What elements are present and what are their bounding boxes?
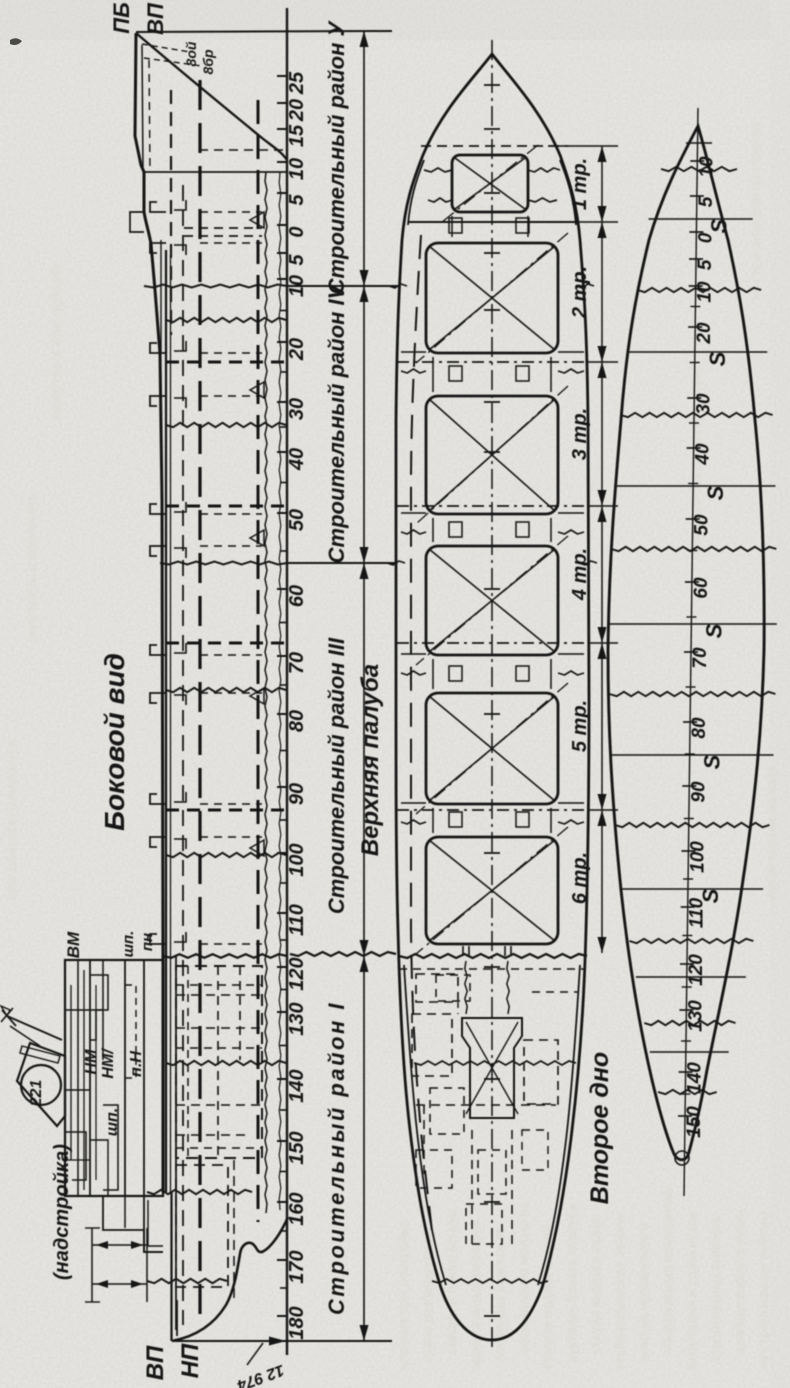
svg-text:8ой: 8ой (183, 41, 199, 66)
svg-text:Второе дно: Второе дно (586, 1052, 614, 1204)
svg-text:крупных блоков корпуса: крупных блоков корпуса (564, 1205, 580, 1362)
svg-text:значительных размеров: значительных размеров (468, 1219, 484, 1370)
svg-text:S: S (701, 623, 726, 638)
svg-text:S: S (707, 218, 732, 233)
svg-text:180: 180 (286, 1306, 308, 1339)
svg-text:6 тр.: 6 тр. (569, 852, 591, 904)
svg-text:90: 90 (688, 781, 709, 803)
svg-text:120: 120 (686, 954, 707, 986)
svg-text:80: 80 (689, 717, 710, 739)
svg-text:ВП: ВП (143, 2, 168, 35)
svg-text:5: 5 (695, 259, 716, 270)
svg-text:25: 25 (286, 71, 308, 95)
svg-text:при этом обеспечивается: при этом обеспечивается (4, 740, 20, 900)
svg-text:Строительный район I: Строительный район I (324, 1001, 349, 1315)
svg-text:150: 150 (684, 1106, 705, 1138)
svg-text:30: 30 (286, 398, 308, 420)
svg-text:40: 40 (693, 443, 714, 466)
svg-text:40: 40 (286, 448, 308, 471)
svg-text:2 тр.: 2 тр. (569, 266, 591, 319)
svg-text:170: 170 (286, 1250, 308, 1283)
svg-text:жесткость и прочность: жесткость и прочность (24, 493, 40, 641)
svg-text:Строительный район IV: Строительный район IV (324, 282, 349, 563)
svg-text:20: 20 (694, 322, 715, 345)
svg-text:НП: НП (177, 1343, 204, 1378)
svg-text:20: 20 (286, 338, 308, 361)
svg-text:позиционном методе на: позиционном методе на (516, 1202, 532, 1354)
svg-text:5: 5 (286, 254, 308, 266)
svg-text:140: 140 (286, 1069, 308, 1102)
svg-text:испытания и сдача судна: испытания и сдача судна (684, 1211, 700, 1370)
svg-text:п.Н: п.Н (128, 1051, 145, 1077)
svg-text:4 тр.: 4 тр. (569, 548, 591, 601)
svg-text:1 тр.: 1 тр. (569, 158, 591, 210)
svg-text:5 тр.: 5 тр. (569, 700, 591, 752)
svg-text:судна разбивается на: судна разбивается на (420, 1228, 436, 1362)
svg-text:60: 60 (286, 585, 308, 607)
svg-text:сборка корпуса судна: сборка корпуса судна (588, 1217, 604, 1354)
svg-text:15: 15 (286, 124, 308, 147)
svg-text:пн: пн (139, 933, 156, 951)
svg-text:оборудования помещений: оборудования помещений (660, 1188, 676, 1354)
svg-text:Боковой вид: Боковой вид (99, 653, 130, 831)
svg-text:100: 100 (687, 841, 708, 873)
svg-text:S: S (698, 888, 723, 903)
svg-text:120: 120 (286, 957, 308, 990)
svg-text:30: 30 (693, 393, 714, 415)
svg-text:130: 130 (286, 1002, 308, 1035)
svg-text:месте в доке или на стапеле: месте в доке или на стапеле (748, 122, 764, 300)
svg-text:130: 130 (685, 1000, 706, 1032)
svg-text:100: 100 (286, 843, 308, 876)
svg-text:которые при постройке: которые при постройке (396, 1221, 412, 1370)
svg-text:Строительный район III: Строительный район III (324, 637, 349, 914)
svg-text:после спуска на воду: после спуска на воду (763, 765, 779, 900)
svg-text:150: 150 (286, 1131, 308, 1164)
svg-text:5: 5 (696, 196, 717, 207)
svg-text:50: 50 (286, 509, 308, 531)
svg-text:10: 10 (696, 156, 717, 178)
svg-text:5: 5 (286, 194, 308, 206)
svg-text:(надстройка): (надстройка) (51, 1144, 73, 1280)
svg-text:60: 60 (691, 577, 712, 599)
svg-text:S: S (700, 754, 725, 769)
svg-text:технологических этапов: технологических этапов (612, 1215, 628, 1370)
svg-text:70: 70 (690, 647, 711, 669)
svg-text:90: 90 (286, 783, 308, 805)
svg-text:Строительный район У: Строительный район У (324, 20, 349, 295)
svg-text:корпусных конструкций: корпусных конструкций (48, 265, 64, 420)
svg-text:10: 10 (695, 281, 716, 303)
svg-text:S: S (705, 351, 730, 366)
svg-text:S: S (703, 485, 728, 500)
svg-text:шп.: шп. (104, 1108, 121, 1136)
svg-text:110: 110 (286, 904, 308, 936)
svg-text:постройка ведется по: постройка ведется по (492, 1225, 508, 1362)
svg-text:монтаж механизмов и: монтаж механизмов и (636, 1222, 652, 1362)
svg-text:50: 50 (692, 514, 713, 536)
svg-text:НМ: НМ (83, 1049, 100, 1075)
svg-text:20: 20 (286, 99, 308, 122)
svg-text:на строительные районы: на строительные районы (756, 1211, 772, 1370)
svg-text:ПБ: ПБ (109, 2, 134, 33)
svg-text:70: 70 (286, 652, 308, 674)
svg-text:160: 160 (286, 1192, 308, 1225)
svg-text:шп.: шп. (120, 931, 137, 958)
svg-text:ВМ: ВМ (64, 931, 83, 958)
svg-text:деление корпуса судна: деление корпуса судна (732, 1209, 748, 1354)
svg-text:НМ/: НМ/ (100, 1048, 117, 1079)
svg-text:221: 221 (28, 1080, 45, 1108)
svg-text:ВП: ВП (142, 1345, 169, 1380)
svg-text:10: 10 (286, 158, 308, 180)
svg-text:8бр: 8бр (200, 49, 216, 74)
svg-text:0: 0 (286, 226, 308, 237)
svg-text:140: 140 (685, 1062, 706, 1094)
svg-text:80: 80 (286, 710, 308, 732)
svg-text:строительных районов: строительных районов (708, 1216, 724, 1362)
svg-text:3 тр.: 3 тр. (569, 408, 591, 460)
svg-text:Верхняя палуба: Верхняя палуба (357, 664, 384, 856)
